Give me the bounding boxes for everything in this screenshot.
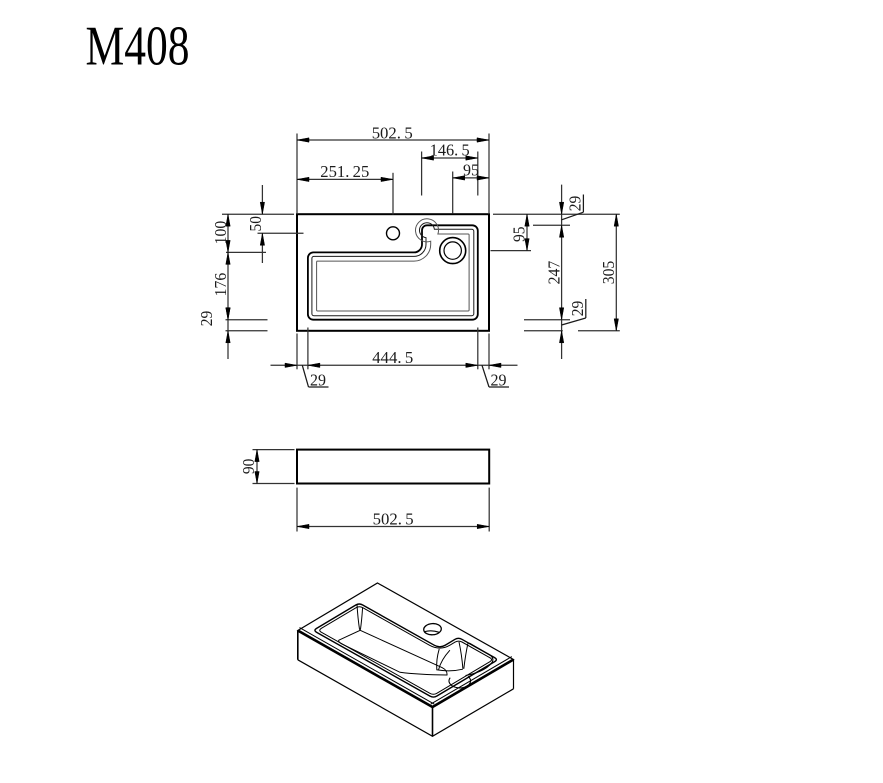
svg-text:176: 176 <box>211 273 230 297</box>
svg-text:305: 305 <box>599 261 618 285</box>
svg-text:29: 29 <box>197 311 216 327</box>
svg-text:29: 29 <box>565 196 584 212</box>
svg-text:444. 5: 444. 5 <box>372 348 413 367</box>
svg-text:95: 95 <box>463 160 479 179</box>
svg-text:90: 90 <box>239 459 258 475</box>
svg-text:146. 5: 146. 5 <box>430 141 470 160</box>
svg-text:502. 5: 502. 5 <box>372 124 413 143</box>
svg-text:50: 50 <box>246 216 265 232</box>
svg-text:29: 29 <box>491 371 507 390</box>
svg-text:247: 247 <box>545 261 564 285</box>
svg-text:251. 25: 251. 25 <box>320 162 369 181</box>
svg-text:29: 29 <box>310 371 326 390</box>
svg-text:95: 95 <box>509 226 528 242</box>
svg-text:100: 100 <box>211 221 230 245</box>
svg-text:M408: M408 <box>86 16 190 78</box>
svg-text:29: 29 <box>568 301 587 317</box>
svg-text:502. 5: 502. 5 <box>373 510 414 529</box>
